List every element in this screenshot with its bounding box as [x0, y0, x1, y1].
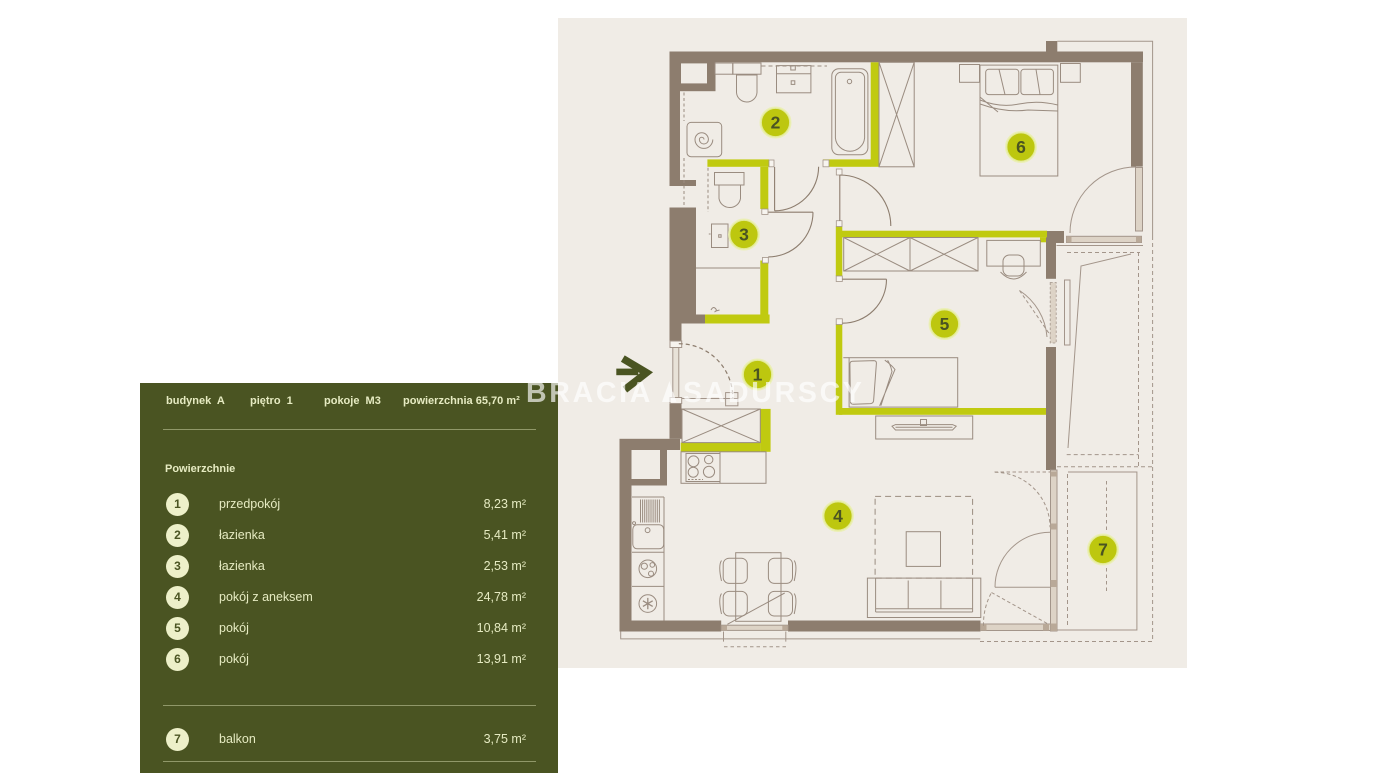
svg-text:7: 7 — [1098, 540, 1108, 560]
svg-text:2: 2 — [771, 113, 781, 133]
svg-text:4: 4 — [833, 506, 843, 526]
svg-text:3: 3 — [739, 225, 749, 245]
svg-text:5: 5 — [940, 314, 950, 334]
svg-text:6: 6 — [1016, 137, 1026, 157]
